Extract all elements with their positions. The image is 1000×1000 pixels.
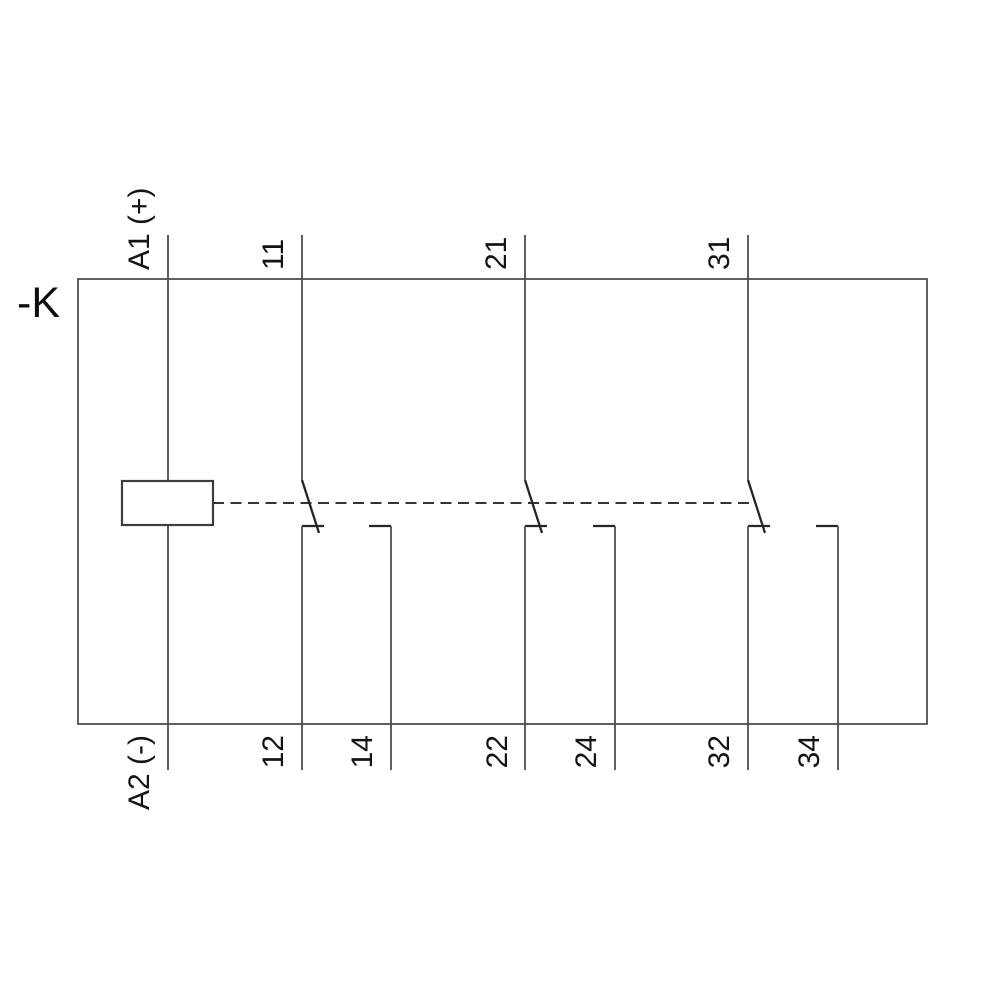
terminal-label-14: 14 <box>348 735 378 855</box>
changeover-contact-3 <box>748 235 838 770</box>
terminal-label-11: 11 <box>259 150 289 270</box>
coil-symbol <box>122 481 213 525</box>
terminal-label-12: 12 <box>259 735 289 855</box>
terminal-label-21: 21 <box>482 150 512 270</box>
coil-symbol-group <box>122 235 213 770</box>
terminal-label-34: 34 <box>795 735 825 855</box>
terminal-label-a2: A2 (-) <box>125 735 155 855</box>
terminal-label-22: 22 <box>483 735 513 855</box>
terminal-label-31: 31 <box>705 150 735 270</box>
terminal-label-a1: A1 (+) <box>125 150 155 270</box>
terminal-label-32: 32 <box>705 735 735 855</box>
terminal-label-24: 24 <box>572 735 602 855</box>
device-designation-label: -K <box>17 282 60 325</box>
